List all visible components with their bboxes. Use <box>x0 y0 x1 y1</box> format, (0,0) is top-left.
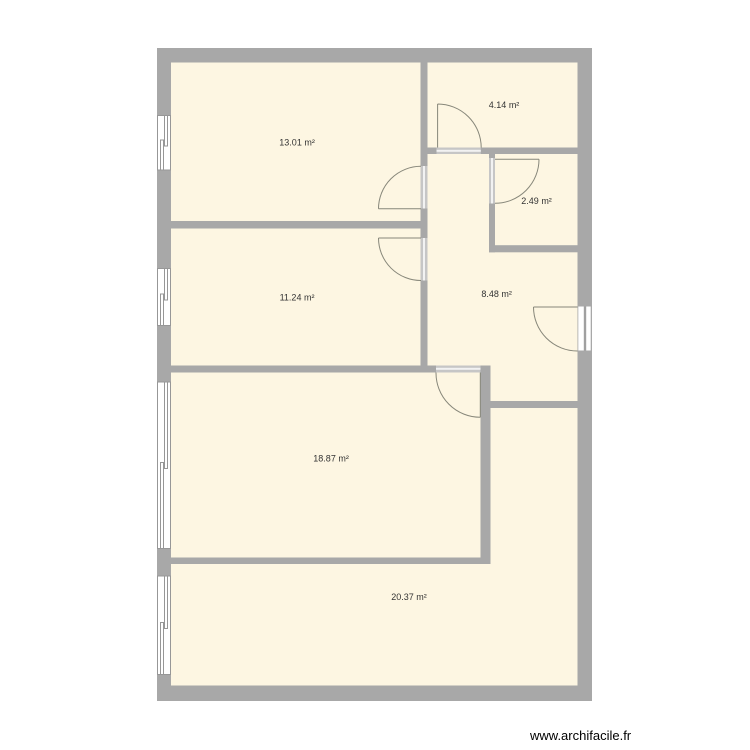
svg-text:8.48 m²: 8.48 m² <box>481 289 512 299</box>
svg-text:20.37 m²: 20.37 m² <box>391 592 427 602</box>
svg-text:www.archifacile.fr: www.archifacile.fr <box>529 728 632 743</box>
svg-text:13.01 m²: 13.01 m² <box>279 137 315 147</box>
svg-text:18.87 m²: 18.87 m² <box>313 454 349 464</box>
svg-text:11.24 m²: 11.24 m² <box>280 293 315 303</box>
svg-text:4.14 m²: 4.14 m² <box>489 100 520 110</box>
svg-text:2.49 m²: 2.49 m² <box>521 196 552 206</box>
